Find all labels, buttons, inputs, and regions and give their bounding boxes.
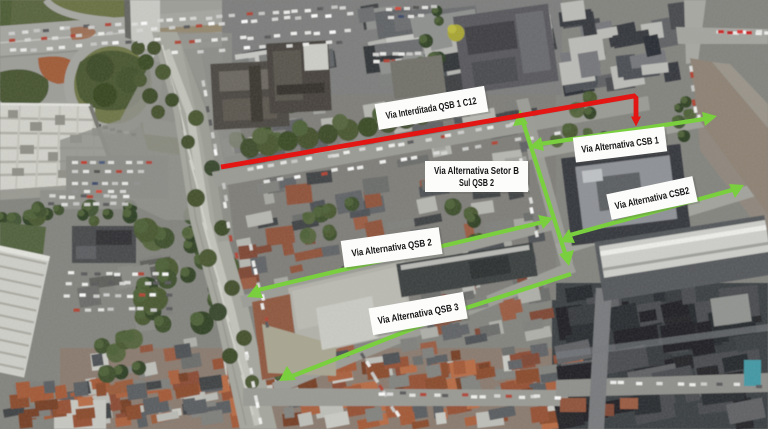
svg-text:Sul QSB 2: Sul QSB 2 — [459, 178, 494, 189]
svg-text:Via Alternativa Setor B: Via Alternativa Setor B — [434, 166, 519, 177]
